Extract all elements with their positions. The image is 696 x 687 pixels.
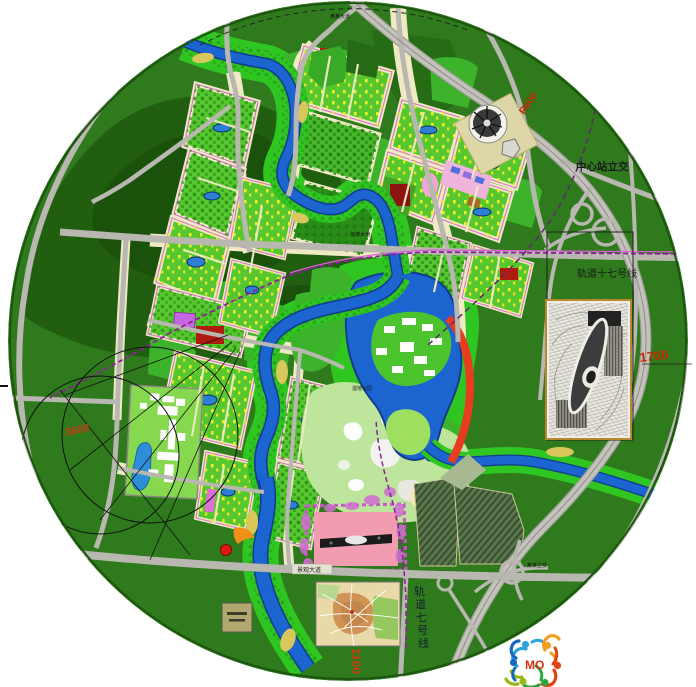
svg-text:七: 七 <box>416 611 427 624</box>
svg-text:轨: 轨 <box>414 584 425 598</box>
svg-text:道: 道 <box>415 597 426 611</box>
svg-text:1700: 1700 <box>639 347 669 365</box>
svg-text:线: 线 <box>418 636 429 650</box>
svg-text:号: 号 <box>417 624 428 637</box>
svg-text:中心站立交: 中心站立交 <box>576 160 629 173</box>
svg-text:花博大道: 花博大道 <box>350 231 370 238</box>
svg-text:某某大道: 某某大道 <box>330 13 350 20</box>
svg-text:景观大道: 景观大道 <box>297 566 321 574</box>
svg-text:MO: MO <box>525 658 544 672</box>
svg-text:1100: 1100 <box>349 648 363 674</box>
svg-text:湿地公园: 湿地公园 <box>352 385 372 392</box>
svg-text:某某立交: 某某立交 <box>527 562 547 569</box>
svg-text:轨道十七号线: 轨道十七号线 <box>577 267 637 280</box>
